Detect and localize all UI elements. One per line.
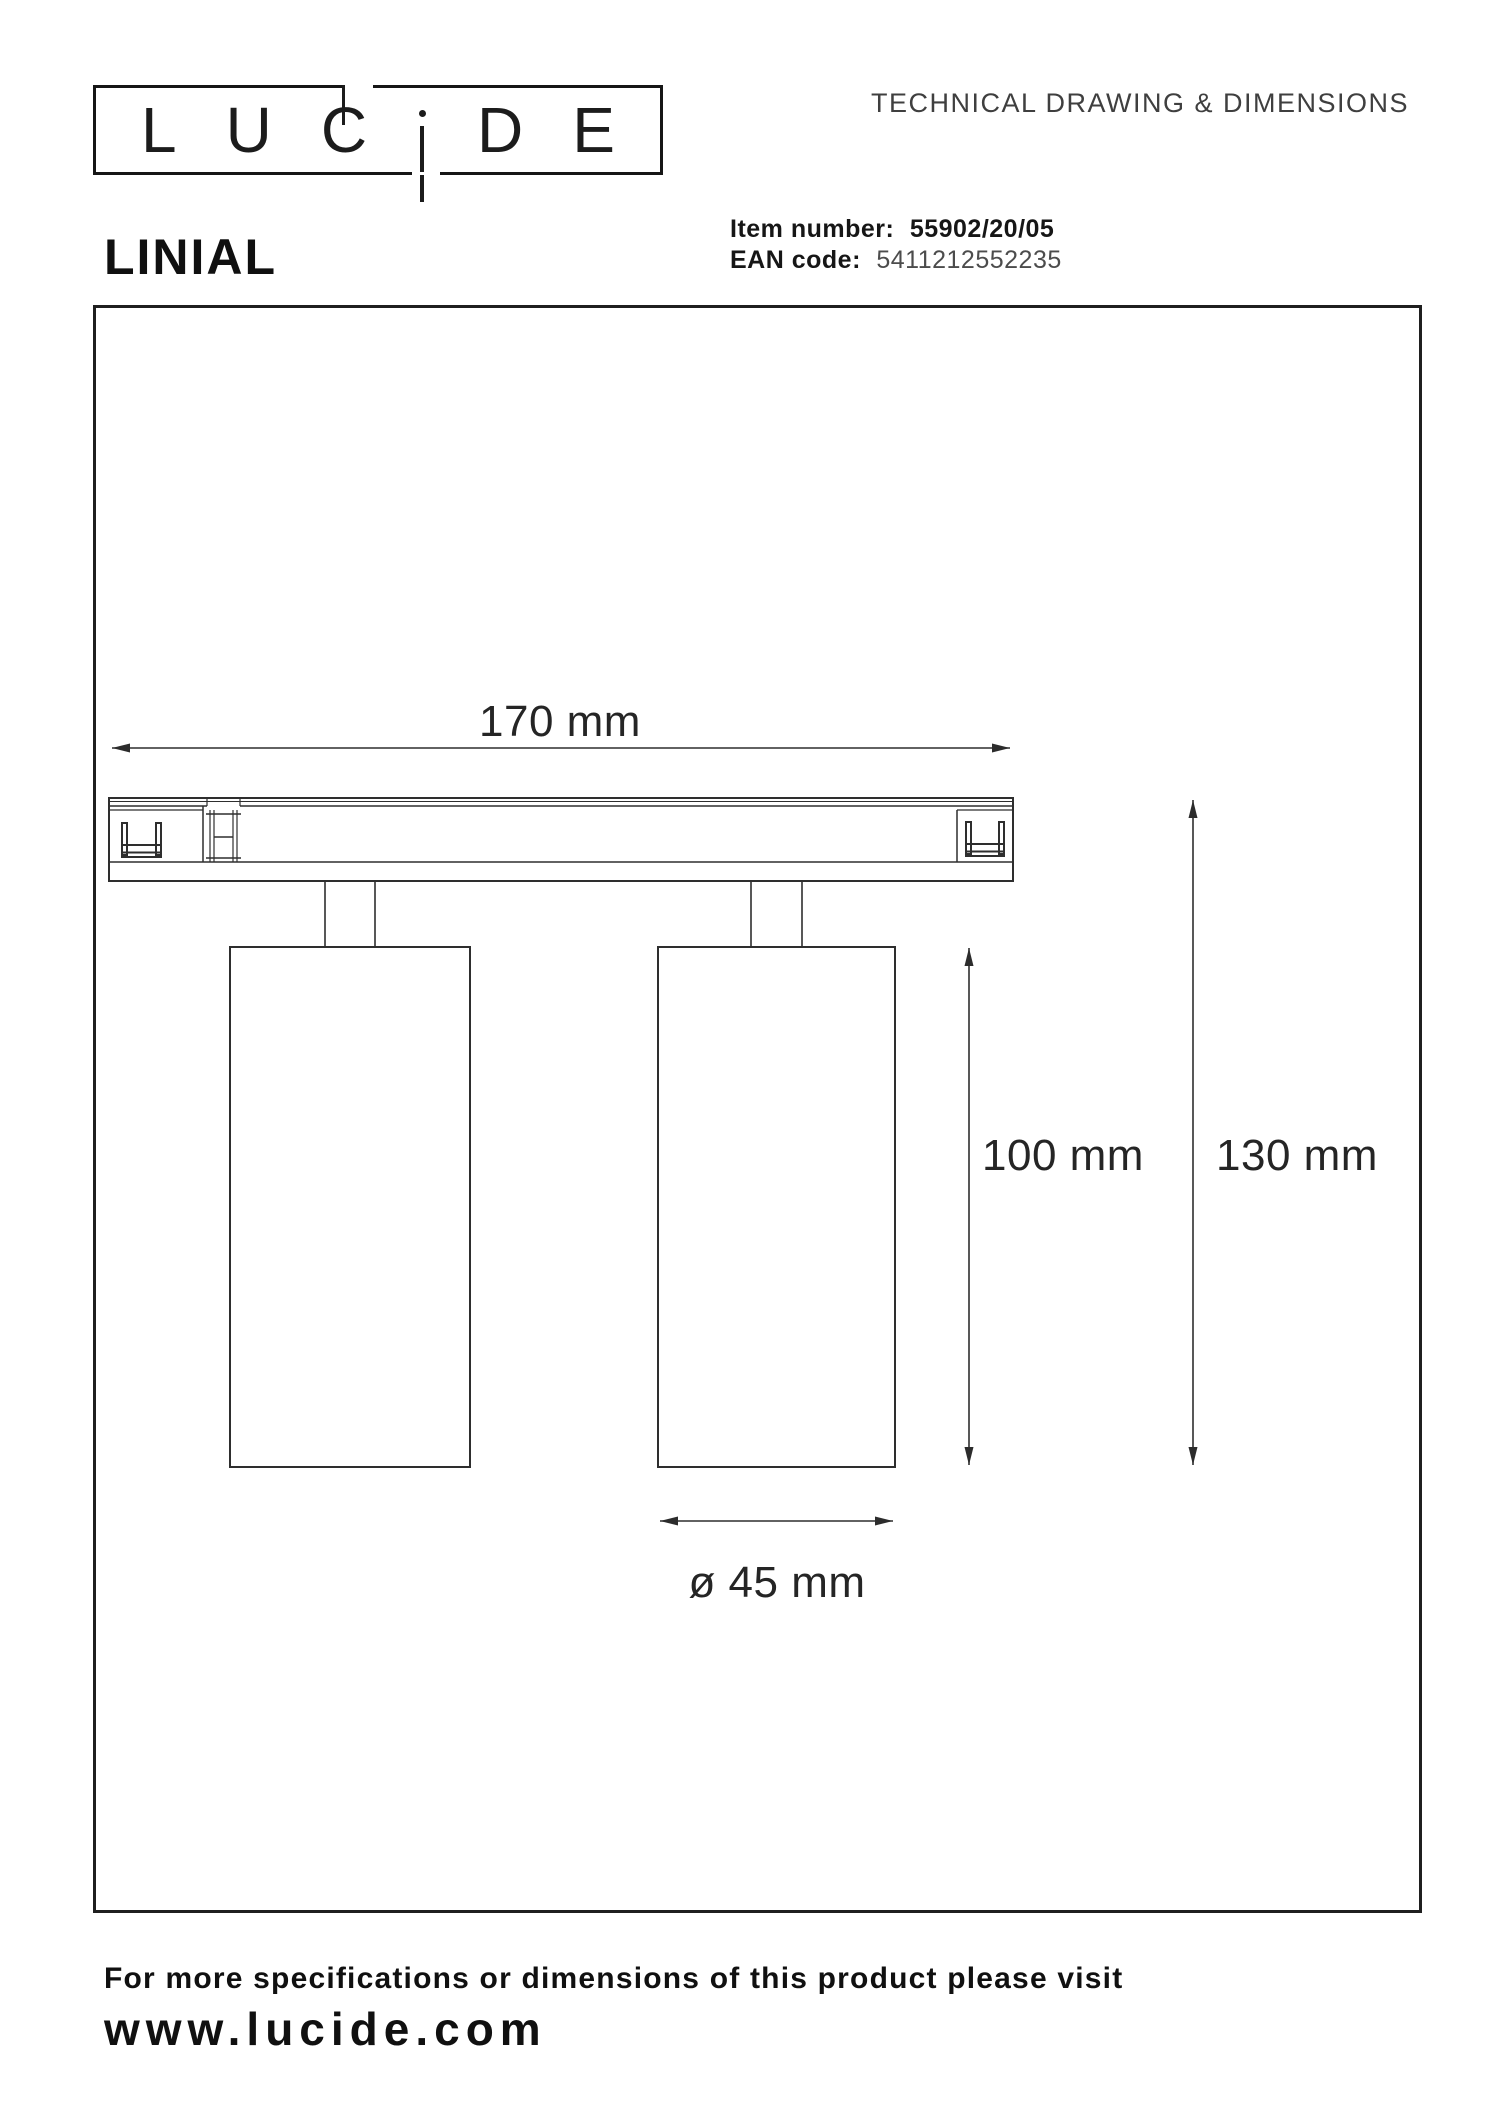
logo-bottom-border-gap [412,172,440,175]
logo-letter-l: L [141,88,177,172]
logo-letter-e: E [572,88,615,172]
product-codes: Item number: 55902/20/05 EAN code: 54112… [730,214,1062,276]
ean-value: 5411212552235 [876,246,1061,274]
logo-letter-i [416,88,428,172]
technical-drawing-page: { "header": { "logo": { "letters": ["L",… [0,0,1500,2122]
footer-note: For more specifications or dimensions of… [104,1962,1123,1996]
item-number-value: 55902/20/05 [910,215,1055,243]
logo-i-stem [420,126,424,202]
logo-letter-row: L U C D E [96,88,660,172]
document-title: TECHNICAL DRAWING & DIMENSIONS [871,88,1409,119]
ean-label: EAN code: [730,246,861,274]
logo-top-border-gap [345,85,373,88]
drawing-frame [93,305,1422,1913]
logo-letter-d: D [477,88,523,172]
item-number-line: Item number: 55902/20/05 [730,214,1062,245]
lucide-logo: L U C D E [93,85,663,175]
logo-i-dot [419,110,426,117]
product-name: LINIAL [104,228,277,286]
item-number-label: Item number: [730,215,894,243]
footer-website-link[interactable]: www.lucide.com [104,2002,547,2056]
logo-letter-u: U [226,88,272,172]
ean-line: EAN code: 5411212552235 [730,245,1062,276]
logo-accent-tick [342,85,345,125]
